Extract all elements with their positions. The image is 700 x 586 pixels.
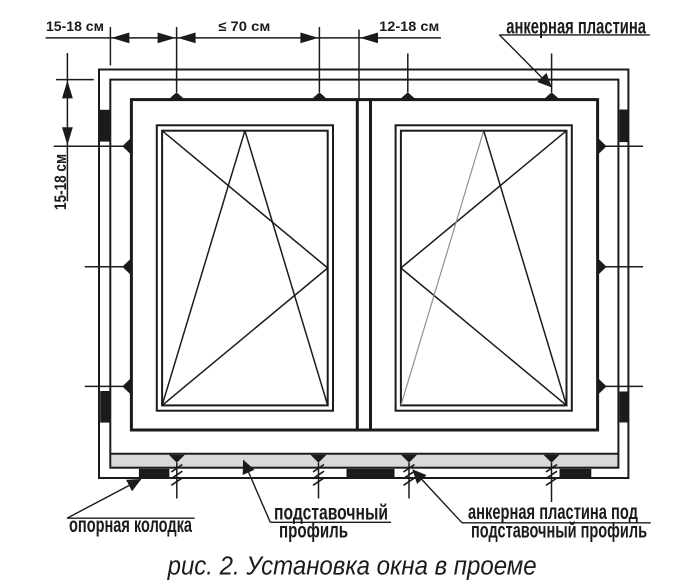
svg-text:подставочный профиль: подставочный профиль (471, 520, 647, 543)
svg-text:профиль: профиль (279, 520, 348, 543)
svg-text:опорная колодка: опорная колодка (69, 514, 192, 537)
svg-text:12-18 см: 12-18 см (379, 18, 439, 34)
svg-text:15-18 см: 15-18 см (51, 154, 70, 210)
svg-text:анкерная пластина: анкерная пластина (506, 15, 646, 38)
svg-text:≤ 70 см: ≤ 70 см (218, 18, 270, 34)
svg-text:15-18 см: 15-18 см (46, 18, 104, 34)
svg-text:рис. 2. Установка окна в проем: рис. 2. Установка окна в проеме (167, 553, 537, 581)
